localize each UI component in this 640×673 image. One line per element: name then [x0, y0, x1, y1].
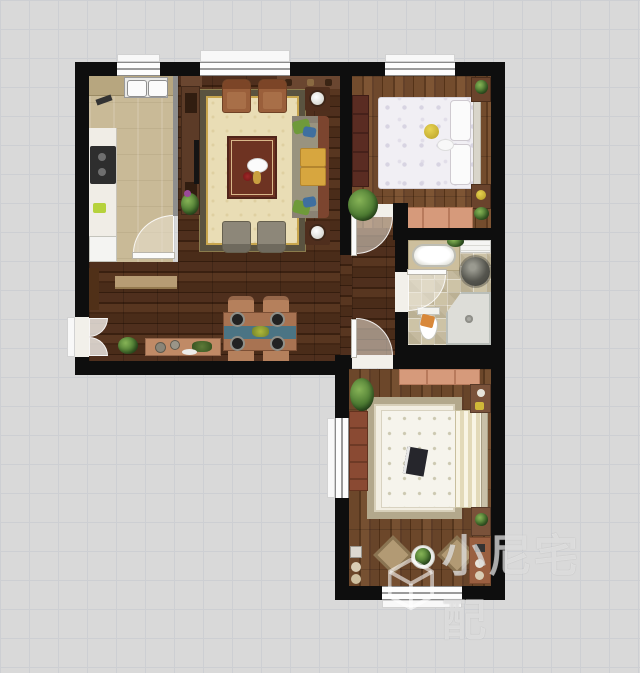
nightstand [470, 384, 491, 413]
cabinet-item [307, 79, 314, 86]
yellow-cushion [300, 148, 326, 167]
bedroom-bottom-door-opening [352, 356, 393, 368]
plate [272, 338, 283, 349]
plate [232, 314, 243, 325]
decor-circle [351, 562, 361, 572]
chair-seat [227, 92, 246, 109]
bedroom-bottom-door [352, 320, 356, 357]
living-plant [181, 193, 199, 215]
nightstand-item [477, 389, 485, 397]
kitchen-partition-wall [173, 76, 178, 216]
plate [272, 314, 283, 325]
window-sill [327, 418, 335, 498]
sideboard-plate [171, 341, 179, 349]
nightstand-plant [475, 80, 488, 94]
cabinet-item [325, 79, 332, 86]
console-shelf [185, 93, 197, 113]
wood-armchair [222, 79, 251, 113]
dining-bench [115, 276, 177, 289]
wall [335, 355, 352, 369]
wall [395, 228, 491, 240]
nightstand-item [475, 402, 484, 410]
coffee-table [227, 136, 277, 199]
entrance-opening [75, 317, 89, 357]
sink-basin [148, 80, 168, 97]
watermark-text: 小尼宅配 [442, 520, 598, 648]
kitchen-double-sink [124, 77, 168, 98]
headboard [481, 410, 488, 508]
chair-back [223, 80, 250, 89]
wall [335, 498, 349, 600]
chair-back [259, 80, 286, 89]
bathroom-door [408, 270, 446, 274]
gray-chair [257, 221, 286, 253]
table-lamp [311, 92, 324, 105]
blue-pillow [302, 126, 317, 138]
sink-basin [127, 80, 147, 97]
bed-bottom-pillows [455, 410, 483, 508]
chair-back [258, 244, 285, 252]
floor-plan: 小尼宅配 [0, 0, 640, 673]
chair-seat [263, 92, 282, 109]
door-sill [67, 317, 75, 357]
wall [393, 355, 505, 369]
bedroom-top-door [352, 216, 356, 255]
plate [232, 338, 243, 349]
table-lamp [311, 226, 324, 239]
hallway-plant [348, 189, 378, 221]
living-room-window [200, 62, 290, 76]
corner-plant [474, 207, 489, 220]
sofa [292, 116, 329, 218]
wall [75, 361, 348, 375]
pillow [450, 100, 471, 141]
watermark-logo-icon [388, 554, 434, 614]
bed-decor [437, 139, 454, 151]
burner [98, 153, 106, 161]
stone-basin [461, 257, 490, 286]
watermark: 小尼宅配 [388, 552, 598, 616]
wall [75, 62, 89, 317]
wall-cabinet-dining [89, 268, 99, 310]
bedroom-bottom-side-window [335, 418, 349, 498]
wood-armchair [258, 79, 287, 113]
dining-floor-plant [118, 337, 138, 354]
flower-decor [243, 172, 252, 181]
wall-decor-frame [350, 546, 362, 558]
bedroom-top-window [385, 62, 455, 76]
decor-circle [351, 574, 361, 584]
wall [335, 586, 382, 600]
kitchen-fridge [89, 236, 117, 262]
kitchen-stove [90, 146, 116, 184]
window-sill [200, 50, 290, 62]
kitchen-green-item [93, 203, 106, 213]
bathtub [412, 244, 456, 267]
burner [98, 168, 106, 176]
pillow [450, 144, 471, 185]
gray-chair [222, 221, 251, 253]
sideboard-dish [182, 349, 197, 355]
teddy-bear [424, 124, 439, 139]
table-centerpiece [252, 326, 269, 337]
kitchen-window [117, 62, 160, 76]
yellow-cushion [300, 167, 326, 186]
kitchen-door [133, 253, 174, 258]
wall [160, 62, 200, 76]
living-floor-strip [340, 255, 352, 362]
wall [335, 361, 349, 418]
tv [194, 140, 199, 184]
sideboard [145, 338, 221, 356]
window-sill [117, 54, 160, 62]
bathroom-door-opening [395, 272, 408, 312]
shower-drain [465, 315, 473, 323]
nightstand-lamp [476, 190, 486, 200]
figurine [253, 171, 261, 184]
headboard [473, 97, 481, 189]
wall [340, 62, 352, 255]
wardrobe [352, 95, 369, 187]
wall [290, 62, 385, 76]
dining-table [223, 312, 297, 351]
wall [395, 228, 408, 272]
bath-shelf [460, 240, 491, 253]
dresser-left [349, 411, 368, 491]
bedroom-bottom-plant [350, 378, 374, 411]
window-sill [385, 54, 455, 62]
dresser-top [399, 369, 480, 385]
chair-back [223, 244, 250, 252]
purple-flower [184, 190, 191, 197]
sideboard-plate [156, 343, 165, 352]
